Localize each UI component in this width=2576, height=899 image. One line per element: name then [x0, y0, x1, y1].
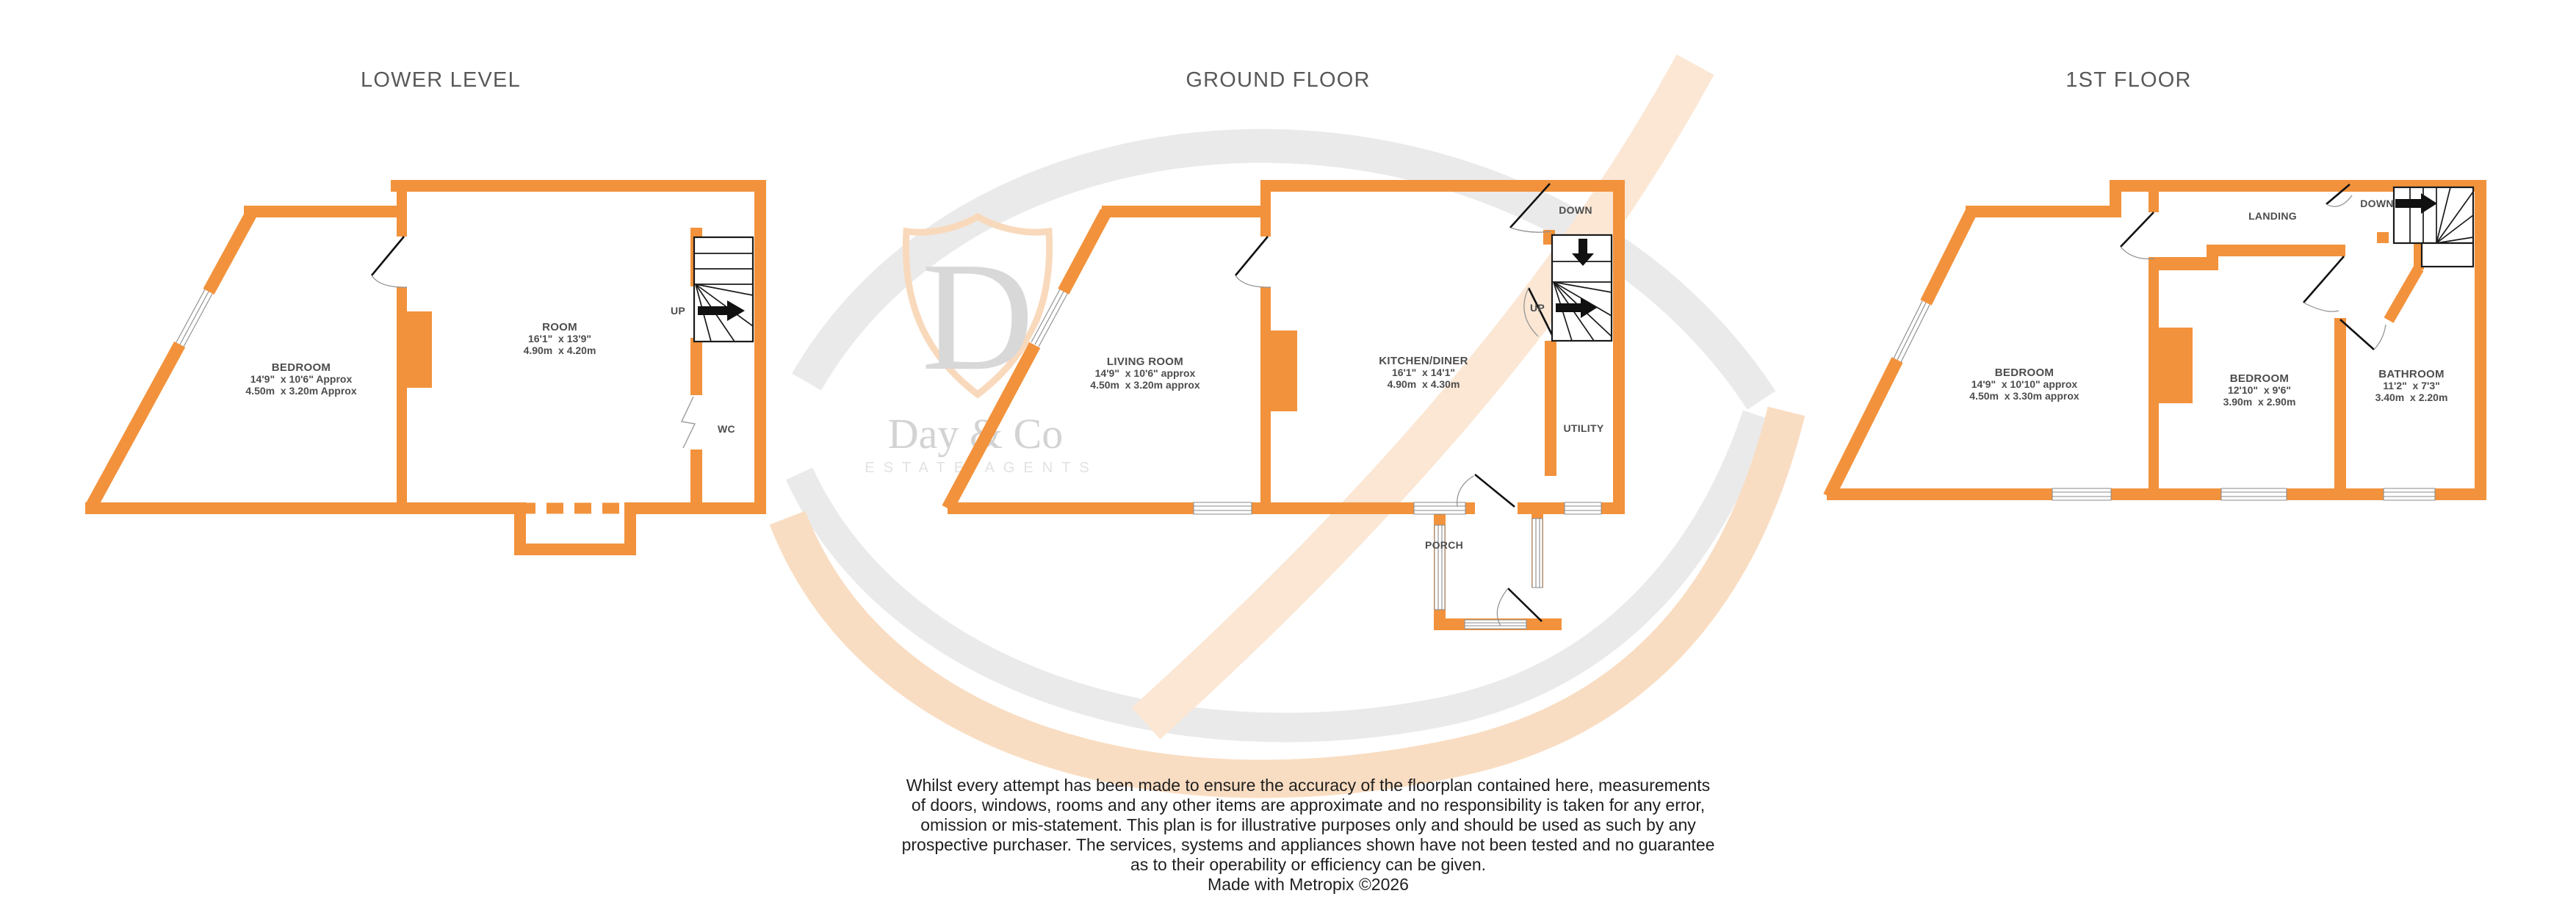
watermark: D Day & Co ESTATE AGENTS [787, 65, 1786, 779]
ground-floor-title: GROUND FLOOR [1186, 68, 1370, 92]
living-bottom-window [1194, 502, 1252, 514]
lower-bedroom-name: BEDROOM [272, 361, 331, 374]
lower-level-walls [85, 180, 766, 555]
lower-level-plan: BEDROOM 14'9" x 10'6" Approx 4.50m x 3.2… [85, 180, 766, 555]
porch-left-window [1435, 525, 1445, 610]
first-stairs [2394, 187, 2473, 267]
first-down-label: DOWN [2360, 198, 2394, 209]
kitchen-diner-imperial: 16'1" x 14'1" [1392, 367, 1455, 378]
lower-level-title: LOWER LEVEL [361, 68, 521, 92]
bedroom1-bottom-window [2052, 488, 2111, 500]
living-room-name: LIVING ROOM [1107, 355, 1183, 368]
kitchen-bottom-window [1414, 502, 1465, 514]
metropix-credit: Made with Metropix ©2026 [1208, 875, 1409, 894]
first-floor-labels: BEDROOM 14'9" x 10'10" approx 4.50m x 3.… [1969, 198, 2447, 408]
chimney-breast [2159, 328, 2193, 403]
lower-slant-window [176, 289, 212, 347]
porch-label: PORCH [1425, 539, 1463, 551]
kitchen-diner-name: KITCHEN/DINER [1379, 355, 1468, 367]
bedroom2-metric: 3.90m x 2.90m [2223, 396, 2296, 408]
lower-room-name: ROOM [542, 321, 577, 333]
lower-level-labels: BEDROOM 14'9" x 10'6" Approx 4.50m x 3.2… [245, 305, 735, 435]
first-floor-walls [1827, 180, 2486, 500]
ground-down-label: DOWN [1559, 204, 1592, 216]
lower-room-imperial: 16'1" x 13'9" [528, 333, 591, 344]
ground-stairs [1552, 235, 1612, 341]
disclaimer-line-1: Whilst every attempt has been made to en… [906, 776, 1710, 795]
bedroom1-slant-window [1894, 301, 1930, 362]
lower-bedroom-metric: 4.50m x 3.20m Approx [245, 385, 356, 397]
disclaimer-line-5: as to their operability or efficiency ca… [1130, 855, 1486, 874]
disclaimer-line-3: omission or mis-statement. This plan is … [920, 815, 1696, 834]
living-room-metric: 4.50m x 3.20m approx [1090, 379, 1200, 391]
living-room-imperial: 14'9" x 10'6" approx [1095, 367, 1196, 379]
chimney-breast [1260, 331, 1297, 411]
landing-label: LANDING [2248, 210, 2297, 222]
lower-bedroom-imperial: 14'9" x 10'6" Approx [250, 373, 353, 385]
lower-up-label: UP [671, 305, 685, 317]
bathroom-bottom-window [2384, 488, 2435, 500]
ground-up-label: UP [1530, 302, 1545, 314]
utility-label: UTILITY [1564, 422, 1604, 434]
bathroom-imperial: 11'2" x 7'3" [2383, 380, 2440, 391]
bedroom2-imperial: 12'10" x 9'6" [2228, 384, 2291, 396]
bedroom1-imperial: 14'9" x 10'10" approx [1971, 378, 2078, 390]
bedroom1-name: BEDROOM [1995, 367, 2054, 379]
disclaimer-line-2: of doors, windows, rooms and any other i… [912, 795, 1705, 815]
bedroom1-metric: 4.50m x 3.30m approx [1969, 390, 2079, 402]
disclaimer: Whilst every attempt has been made to en… [902, 776, 1715, 894]
porch-right-window [1532, 519, 1543, 588]
bathroom-name: BATHROOM [2378, 368, 2445, 380]
lower-room-metric: 4.90m x 4.20m [524, 344, 596, 356]
bedroom2-door [2303, 256, 2344, 311]
first-floor-plan: BEDROOM 14'9" x 10'10" approx 4.50m x 3.… [1827, 180, 2486, 500]
kitchen-diner-metric: 4.90m x 4.30m [1388, 378, 1460, 390]
head-height-zigzag-icon [682, 397, 695, 448]
bedroom1-door [2121, 212, 2154, 259]
bedroom2-bottom-window [2221, 488, 2287, 500]
lower-wc-label: WC [718, 423, 735, 435]
porch-bottom-window [1465, 620, 1526, 629]
bathroom-door [2340, 319, 2386, 350]
living-kitchen-door [1235, 237, 1271, 287]
bedroom2-name: BEDROOM [2230, 372, 2289, 385]
lower-stairs [694, 237, 753, 342]
lower-door-bedroom [372, 237, 407, 287]
first-floor-title: 1ST FLOOR [2066, 68, 2191, 92]
utility-bottom-window [1565, 502, 1601, 514]
floor-titles: LOWER LEVEL GROUND FLOOR 1ST FLOOR [361, 68, 2192, 92]
watermark-tagline: ESTATE AGENTS [865, 460, 1098, 476]
chimney-breast [397, 311, 432, 388]
floorplan-page: D Day & Co ESTATE AGENTS LOWER LEVEL GRO… [0, 0, 2576, 899]
bathroom-metric: 3.40m x 2.20m [2375, 391, 2448, 403]
disclaimer-line-4: prospective purchaser. The services, sys… [902, 835, 1715, 854]
